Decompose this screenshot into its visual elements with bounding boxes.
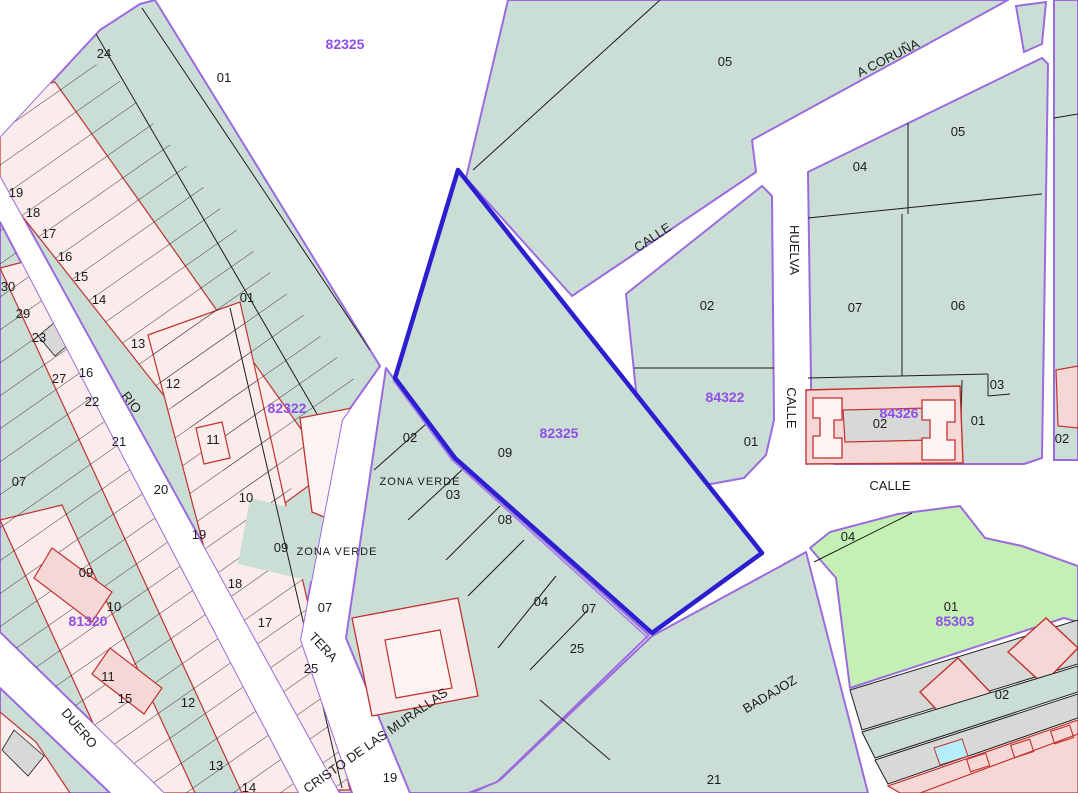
block-number-84322: 84322 [706, 389, 745, 405]
parcel-number-01: 01 [944, 599, 958, 614]
parcel-number-02: 02 [403, 430, 417, 445]
parcel-number-04: 04 [853, 159, 867, 174]
parcel-number-07: 07 [318, 600, 332, 615]
block-number-85303: 85303 [936, 613, 975, 629]
parcel-number-16: 16 [58, 249, 72, 264]
parcel-number-24: 24 [97, 46, 111, 61]
street-name-huelva: HUELVA [787, 225, 802, 275]
parcel-number-10: 10 [239, 490, 253, 505]
parcel-number-01: 01 [971, 413, 985, 428]
parcel-number-27: 27 [52, 371, 66, 386]
parcel-number-14: 14 [242, 780, 256, 793]
parcel-number-23: 23 [32, 330, 46, 345]
parcel-number-06: 06 [951, 298, 965, 313]
block-number-82325: 82325 [326, 36, 365, 52]
parcel-number-zona-verde: ZONA VERDE [297, 546, 378, 558]
parcel-number-19: 19 [192, 527, 206, 542]
parcel-number-17: 17 [258, 615, 272, 630]
parcel-number-01: 01 [217, 70, 231, 85]
parcel-number-09: 09 [79, 565, 93, 580]
parcel-number-20: 20 [154, 482, 168, 497]
parcel-number-07: 07 [12, 474, 26, 489]
parcel-number-19: 19 [383, 770, 397, 785]
parcel-number-02: 02 [995, 687, 1009, 702]
parcel-number-22: 22 [85, 394, 99, 409]
parcel-number-29: 29 [16, 306, 30, 321]
cadastral-map-canvas: 24018232505A CORUÑA0504CALLEHUELVA020706… [0, 0, 1078, 793]
parcel-number-09: 09 [274, 540, 288, 555]
parcel-number-13: 13 [209, 758, 223, 773]
parcel-number-03: 03 [446, 487, 460, 502]
parcel-number-01: 01 [744, 434, 758, 449]
parcel-number-14: 14 [92, 292, 106, 307]
block-number-82325: 82325 [540, 425, 579, 441]
building-far-right [1056, 366, 1078, 428]
parcel-number-15: 15 [118, 691, 132, 706]
parcel-number-11: 11 [101, 669, 115, 684]
parcel-number-11: 11 [206, 432, 220, 447]
parcel-number-18: 18 [26, 205, 40, 220]
map-svg: 24018232505A CORUÑA0504CALLEHUELVA020706… [0, 0, 1078, 793]
parcel-number-30: 30 [1, 279, 15, 294]
parcel-number-18: 18 [228, 576, 242, 591]
parcel-number-04: 04 [841, 529, 855, 544]
parcel-number-19: 19 [9, 185, 23, 200]
parcel-number-12: 12 [181, 695, 195, 710]
parcel-number-16: 16 [79, 365, 93, 380]
street-name-calle: CALLE [784, 387, 799, 429]
parcel-number-07: 07 [582, 601, 596, 616]
parcel-number-13: 13 [131, 336, 145, 351]
parcel-number-04: 04 [534, 594, 548, 609]
street-name-calle: CALLE [869, 478, 911, 493]
parcel-number-25: 25 [570, 641, 584, 656]
parcel-number-10: 10 [107, 599, 121, 614]
parcel-number-12: 12 [166, 376, 180, 391]
parcel-number-03: 03 [990, 377, 1004, 392]
parcel-number-02: 02 [700, 298, 714, 313]
parcel-number-01: 01 [240, 290, 254, 305]
parcel-number-21: 21 [112, 434, 126, 449]
parcel-number-07: 07 [848, 300, 862, 315]
parcel-number-25: 25 [304, 661, 318, 676]
parcel-number-05: 05 [718, 54, 732, 69]
parcel-number-08: 08 [498, 512, 512, 527]
parcel-number-15: 15 [74, 269, 88, 284]
parcel-number-02: 02 [873, 416, 887, 431]
parcel-number-09: 09 [498, 445, 512, 460]
block-number-82322: 82322 [268, 400, 307, 416]
parcel-number-21: 21 [707, 772, 721, 787]
parcel-number-17: 17 [42, 226, 56, 241]
parcel-number-02: 02 [1055, 431, 1069, 446]
parcel-number-05: 05 [951, 124, 965, 139]
block-number-81320: 81320 [69, 613, 108, 629]
